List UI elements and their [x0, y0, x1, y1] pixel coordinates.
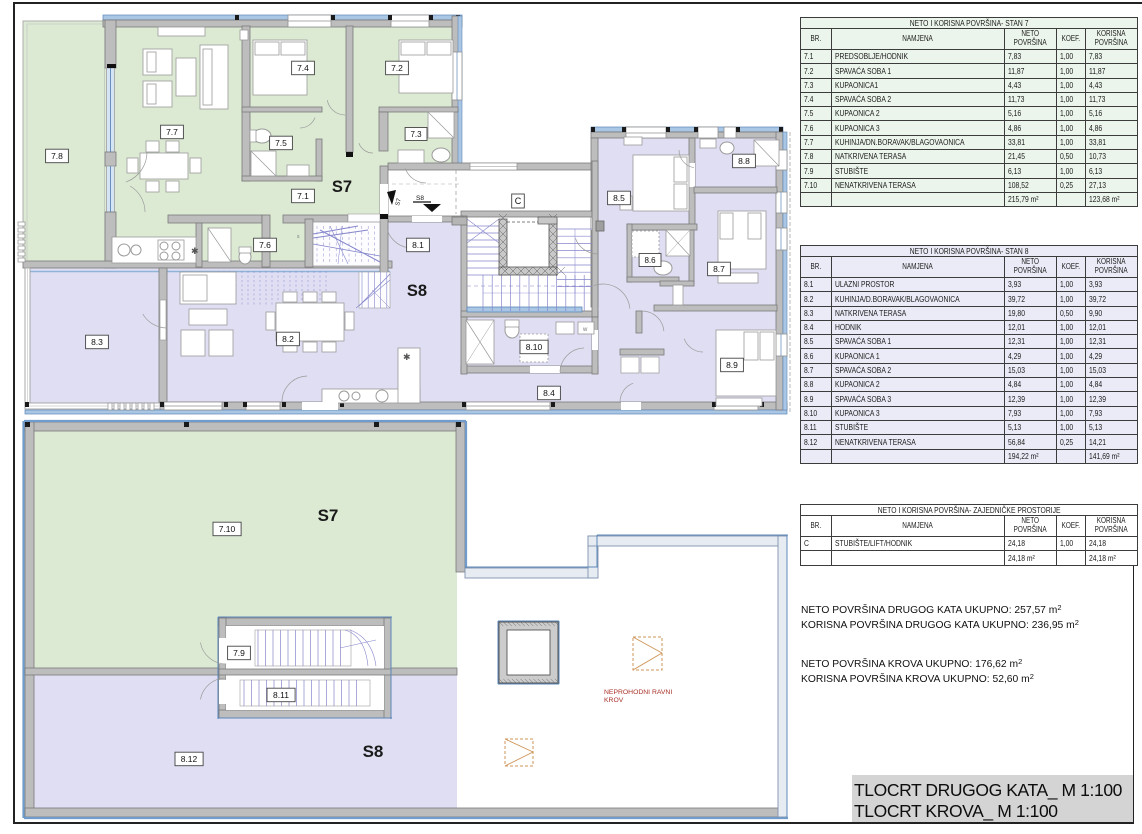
svg-text:KROV: KROV — [604, 697, 624, 704]
svg-text:8.11: 8.11 — [273, 690, 289, 700]
svg-text:✱: ✱ — [191, 246, 199, 256]
svg-text:7.10: 7.10 — [219, 524, 236, 534]
svg-text:S8: S8 — [416, 195, 424, 202]
svg-text:7.1: 7.1 — [297, 191, 309, 201]
svg-text:7.8: 7.8 — [51, 151, 63, 161]
svg-text:8.5: 8.5 — [613, 193, 625, 203]
svg-text:7.2: 7.2 — [391, 63, 403, 73]
svg-text:C: C — [515, 196, 522, 206]
svg-text:S8: S8 — [363, 742, 384, 761]
svg-text:7.4: 7.4 — [297, 63, 309, 73]
svg-text:8.3: 8.3 — [91, 337, 103, 347]
svg-text:7.7: 7.7 — [166, 127, 178, 137]
svg-text:✱: ✱ — [403, 352, 411, 362]
svg-text:8.12: 8.12 — [181, 754, 198, 764]
svg-text:8.2: 8.2 — [282, 334, 294, 344]
svg-text:8.4: 8.4 — [543, 388, 555, 398]
svg-text:8.6: 8.6 — [644, 256, 656, 265]
svg-text:8.7: 8.7 — [713, 264, 725, 274]
svg-text:S7: S7 — [318, 506, 339, 525]
svg-text:7.9: 7.9 — [233, 648, 245, 658]
svg-text:8.1: 8.1 — [412, 240, 424, 250]
svg-text:S8: S8 — [407, 282, 427, 300]
svg-text:w: w — [582, 327, 588, 333]
svg-text:NEPROHODNI RAVNI: NEPROHODNI RAVNI — [604, 689, 672, 696]
svg-text:7.6: 7.6 — [259, 240, 271, 250]
svg-text:8.9: 8.9 — [726, 360, 738, 370]
svg-text:8.10: 8.10 — [526, 342, 543, 352]
svg-text:S7: S7 — [332, 178, 352, 196]
svg-text:8.8: 8.8 — [738, 156, 750, 166]
svg-text:7.3: 7.3 — [410, 130, 422, 139]
svg-text:7.5: 7.5 — [275, 138, 287, 148]
